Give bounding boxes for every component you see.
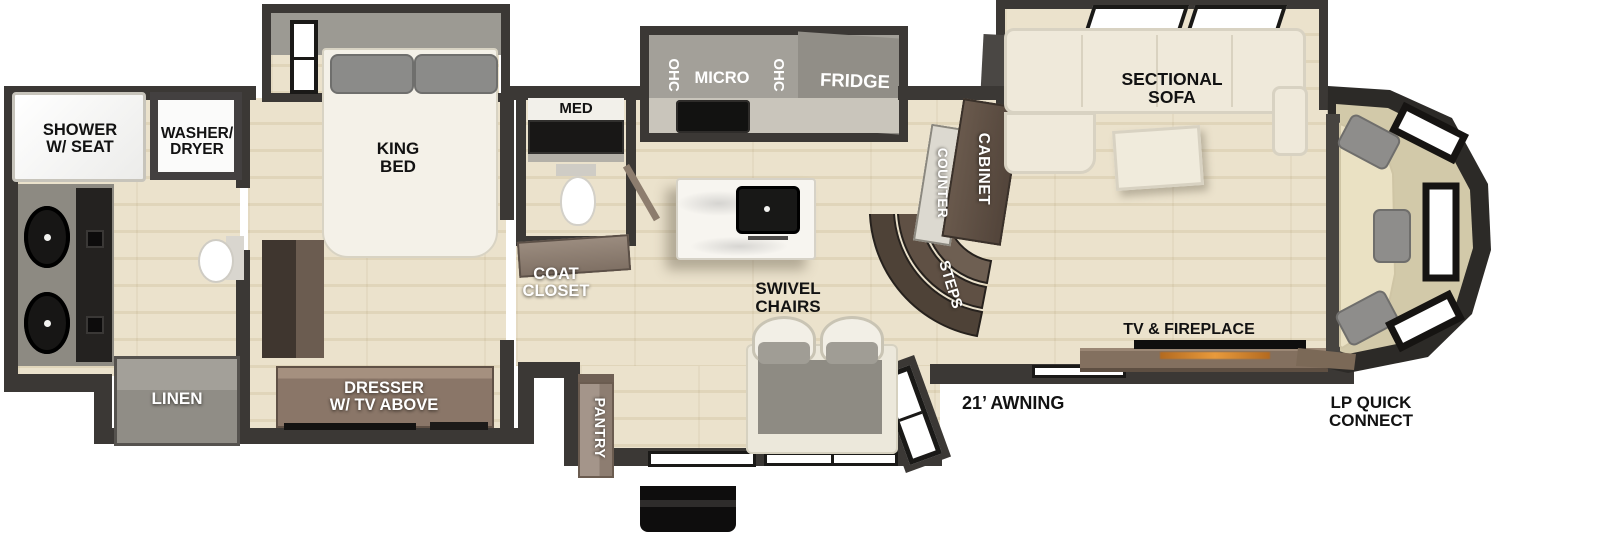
pillow xyxy=(414,54,498,94)
wall xyxy=(898,86,1004,100)
faucet-fixture xyxy=(86,316,104,334)
coat-closet-label: COAT CLOSET xyxy=(506,266,606,306)
window xyxy=(648,451,756,467)
rear-cap xyxy=(1290,78,1495,378)
dresser-label: DRESSER W/ TV ABOVE xyxy=(294,380,474,418)
half-bath-counter xyxy=(528,154,624,162)
chair-seat xyxy=(758,342,810,364)
faucet xyxy=(44,320,51,327)
med-label: MED xyxy=(528,101,624,119)
king-bed-label: KING BED xyxy=(348,140,448,180)
tv xyxy=(284,423,416,430)
linen-label: LINEN xyxy=(130,390,224,410)
tv xyxy=(1134,340,1306,349)
window xyxy=(1426,186,1456,278)
window xyxy=(290,20,318,94)
wall xyxy=(4,374,108,392)
micro-label: MICRO xyxy=(690,70,754,90)
wardrobe xyxy=(262,240,324,358)
lp-quick-connect-label: LP QUICK CONNECT xyxy=(1314,394,1428,432)
awning-label: 21’ AWNING xyxy=(962,394,1112,416)
ottoman xyxy=(1112,125,1204,191)
vanity-countertop xyxy=(76,188,112,362)
cabinet-label: CABINET xyxy=(973,129,991,209)
window xyxy=(764,452,898,466)
counter-label: COUNTER xyxy=(933,145,949,221)
shower-label: SHOWER W/ SEAT xyxy=(20,122,140,162)
sectional-sofa-chaise xyxy=(1004,112,1096,174)
faucet-fixture xyxy=(86,230,104,248)
faucet xyxy=(44,234,51,241)
cooktop xyxy=(676,100,750,133)
pantry-label: PANTRY xyxy=(588,391,606,465)
sectional-sofa-label: SECTIONAL SOFA xyxy=(1100,70,1244,110)
table-top xyxy=(758,360,882,434)
faucet xyxy=(764,206,770,212)
ohc-label: OHC xyxy=(768,49,786,101)
entry-steps xyxy=(640,486,736,532)
sink-controls xyxy=(748,236,788,240)
tv-fireplace-label: TV & FIREPLACE xyxy=(1104,322,1274,340)
fridge-label: FRIDGE xyxy=(812,70,899,95)
wall xyxy=(500,340,514,432)
toilet xyxy=(198,239,234,283)
rv-floorplan: SHOWER W/ SEAT WASHER/ DRYER KING BED ME… xyxy=(0,0,1600,534)
half-bath-sink xyxy=(528,120,624,154)
wall xyxy=(500,100,514,220)
recliner-pillow xyxy=(1374,210,1410,262)
toilet-tank xyxy=(556,164,596,176)
washer-dryer-label: WASHER/ DRYER xyxy=(152,126,242,162)
swivel-chairs-label: SWIVEL CHAIRS xyxy=(736,280,840,318)
ohc-label: OHC xyxy=(663,49,681,101)
pillow xyxy=(330,54,414,94)
toilet xyxy=(560,176,596,226)
dresser-shelf xyxy=(430,422,488,430)
fireplace xyxy=(1160,352,1270,359)
